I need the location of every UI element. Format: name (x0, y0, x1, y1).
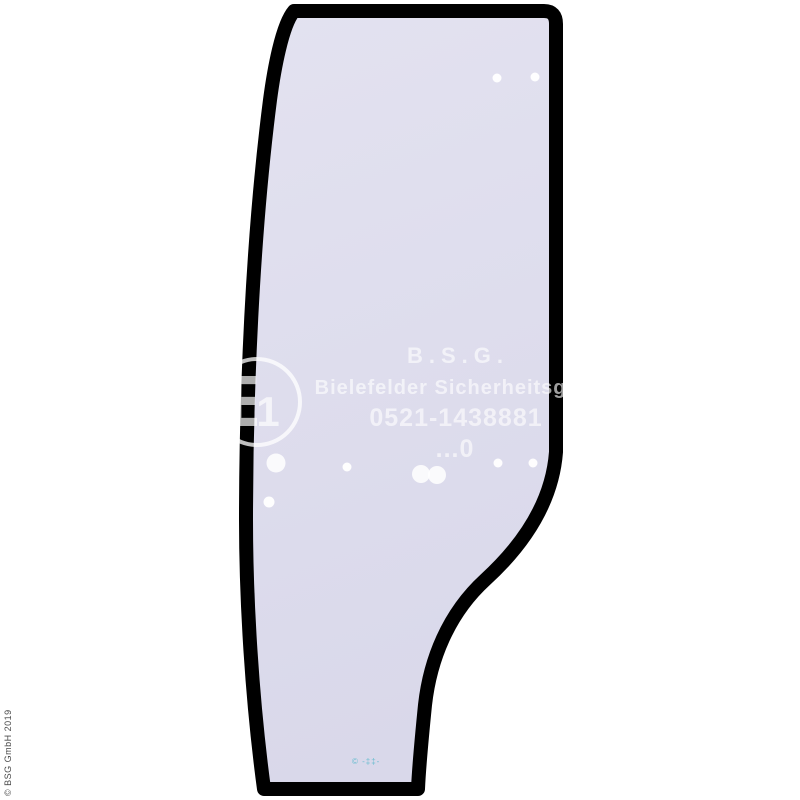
ece-approval-letter: E (234, 362, 259, 442)
product-image-door-glass: E 1 B.S.G. Bielefelder Sicherheitsglas 0… (0, 0, 800, 800)
copyright-vertical-text: © BSG GmbH 2019 (3, 709, 13, 796)
glass-dot (412, 465, 430, 483)
glass-dot (343, 463, 352, 472)
glass-stamp-mark: © -‡‡- (352, 757, 380, 766)
glass-dot (493, 74, 502, 83)
watermark-phone: 0521-1438881 (369, 404, 542, 432)
door-glass-illustration: E 1 B.S.G. Bielefelder Sicherheitsglas 0… (0, 0, 800, 800)
glass-dot (264, 497, 275, 508)
glass-dot (529, 459, 538, 468)
glass-dot (428, 466, 446, 484)
glass-dot (531, 73, 540, 82)
watermark-company: Bielefelder Sicherheitsglas (315, 377, 598, 399)
glass-dot (267, 454, 286, 473)
glass-pane-shape (246, 11, 556, 789)
watermark-brand: B.S.G. (407, 343, 509, 368)
glass-dot (494, 459, 503, 468)
ece-approval-number: 1 (256, 388, 279, 435)
watermark-suffix: ...0 (436, 435, 475, 463)
